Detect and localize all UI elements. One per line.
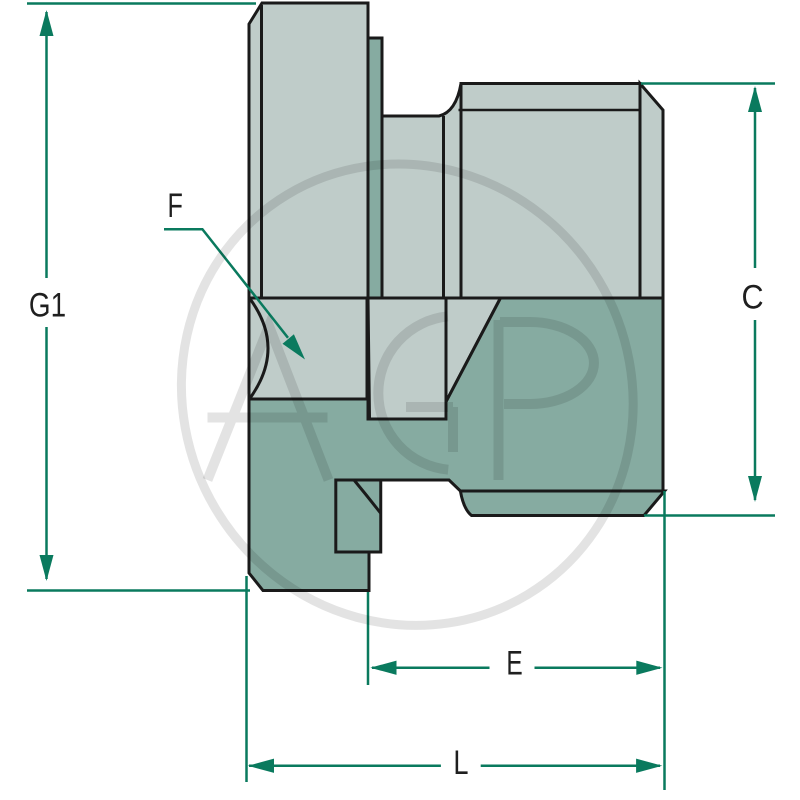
svg-text:F: F — [168, 188, 183, 226]
svg-text:C: C — [741, 278, 763, 316]
svg-text:G1: G1 — [29, 286, 66, 324]
svg-text:E: E — [506, 645, 522, 683]
svg-text:L: L — [453, 743, 468, 782]
